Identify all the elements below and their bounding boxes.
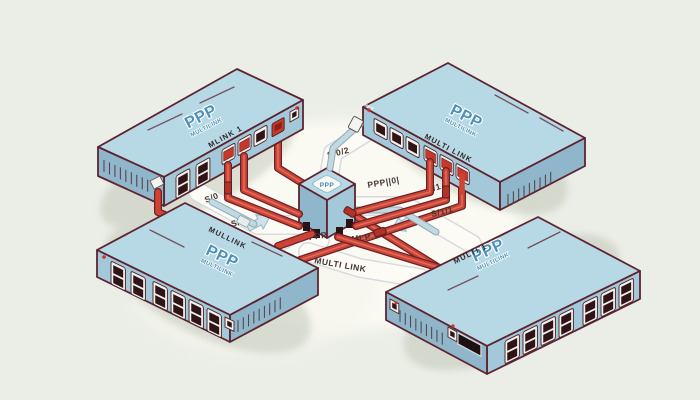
network-diagram: PPP S/0 S/0/ S/0/2 PPP||0| S/1 S/1/1 PPP… <box>0 0 700 400</box>
hub-logo: PPP <box>320 182 335 189</box>
hub-device: PPP <box>299 168 355 238</box>
hub-port <box>346 219 353 228</box>
status-led <box>102 255 106 259</box>
hub-port <box>303 222 310 231</box>
status-led <box>394 301 397 304</box>
status-led <box>295 106 299 110</box>
cable-connector <box>443 186 450 198</box>
cable-connector <box>225 182 232 194</box>
status-led <box>451 324 454 327</box>
